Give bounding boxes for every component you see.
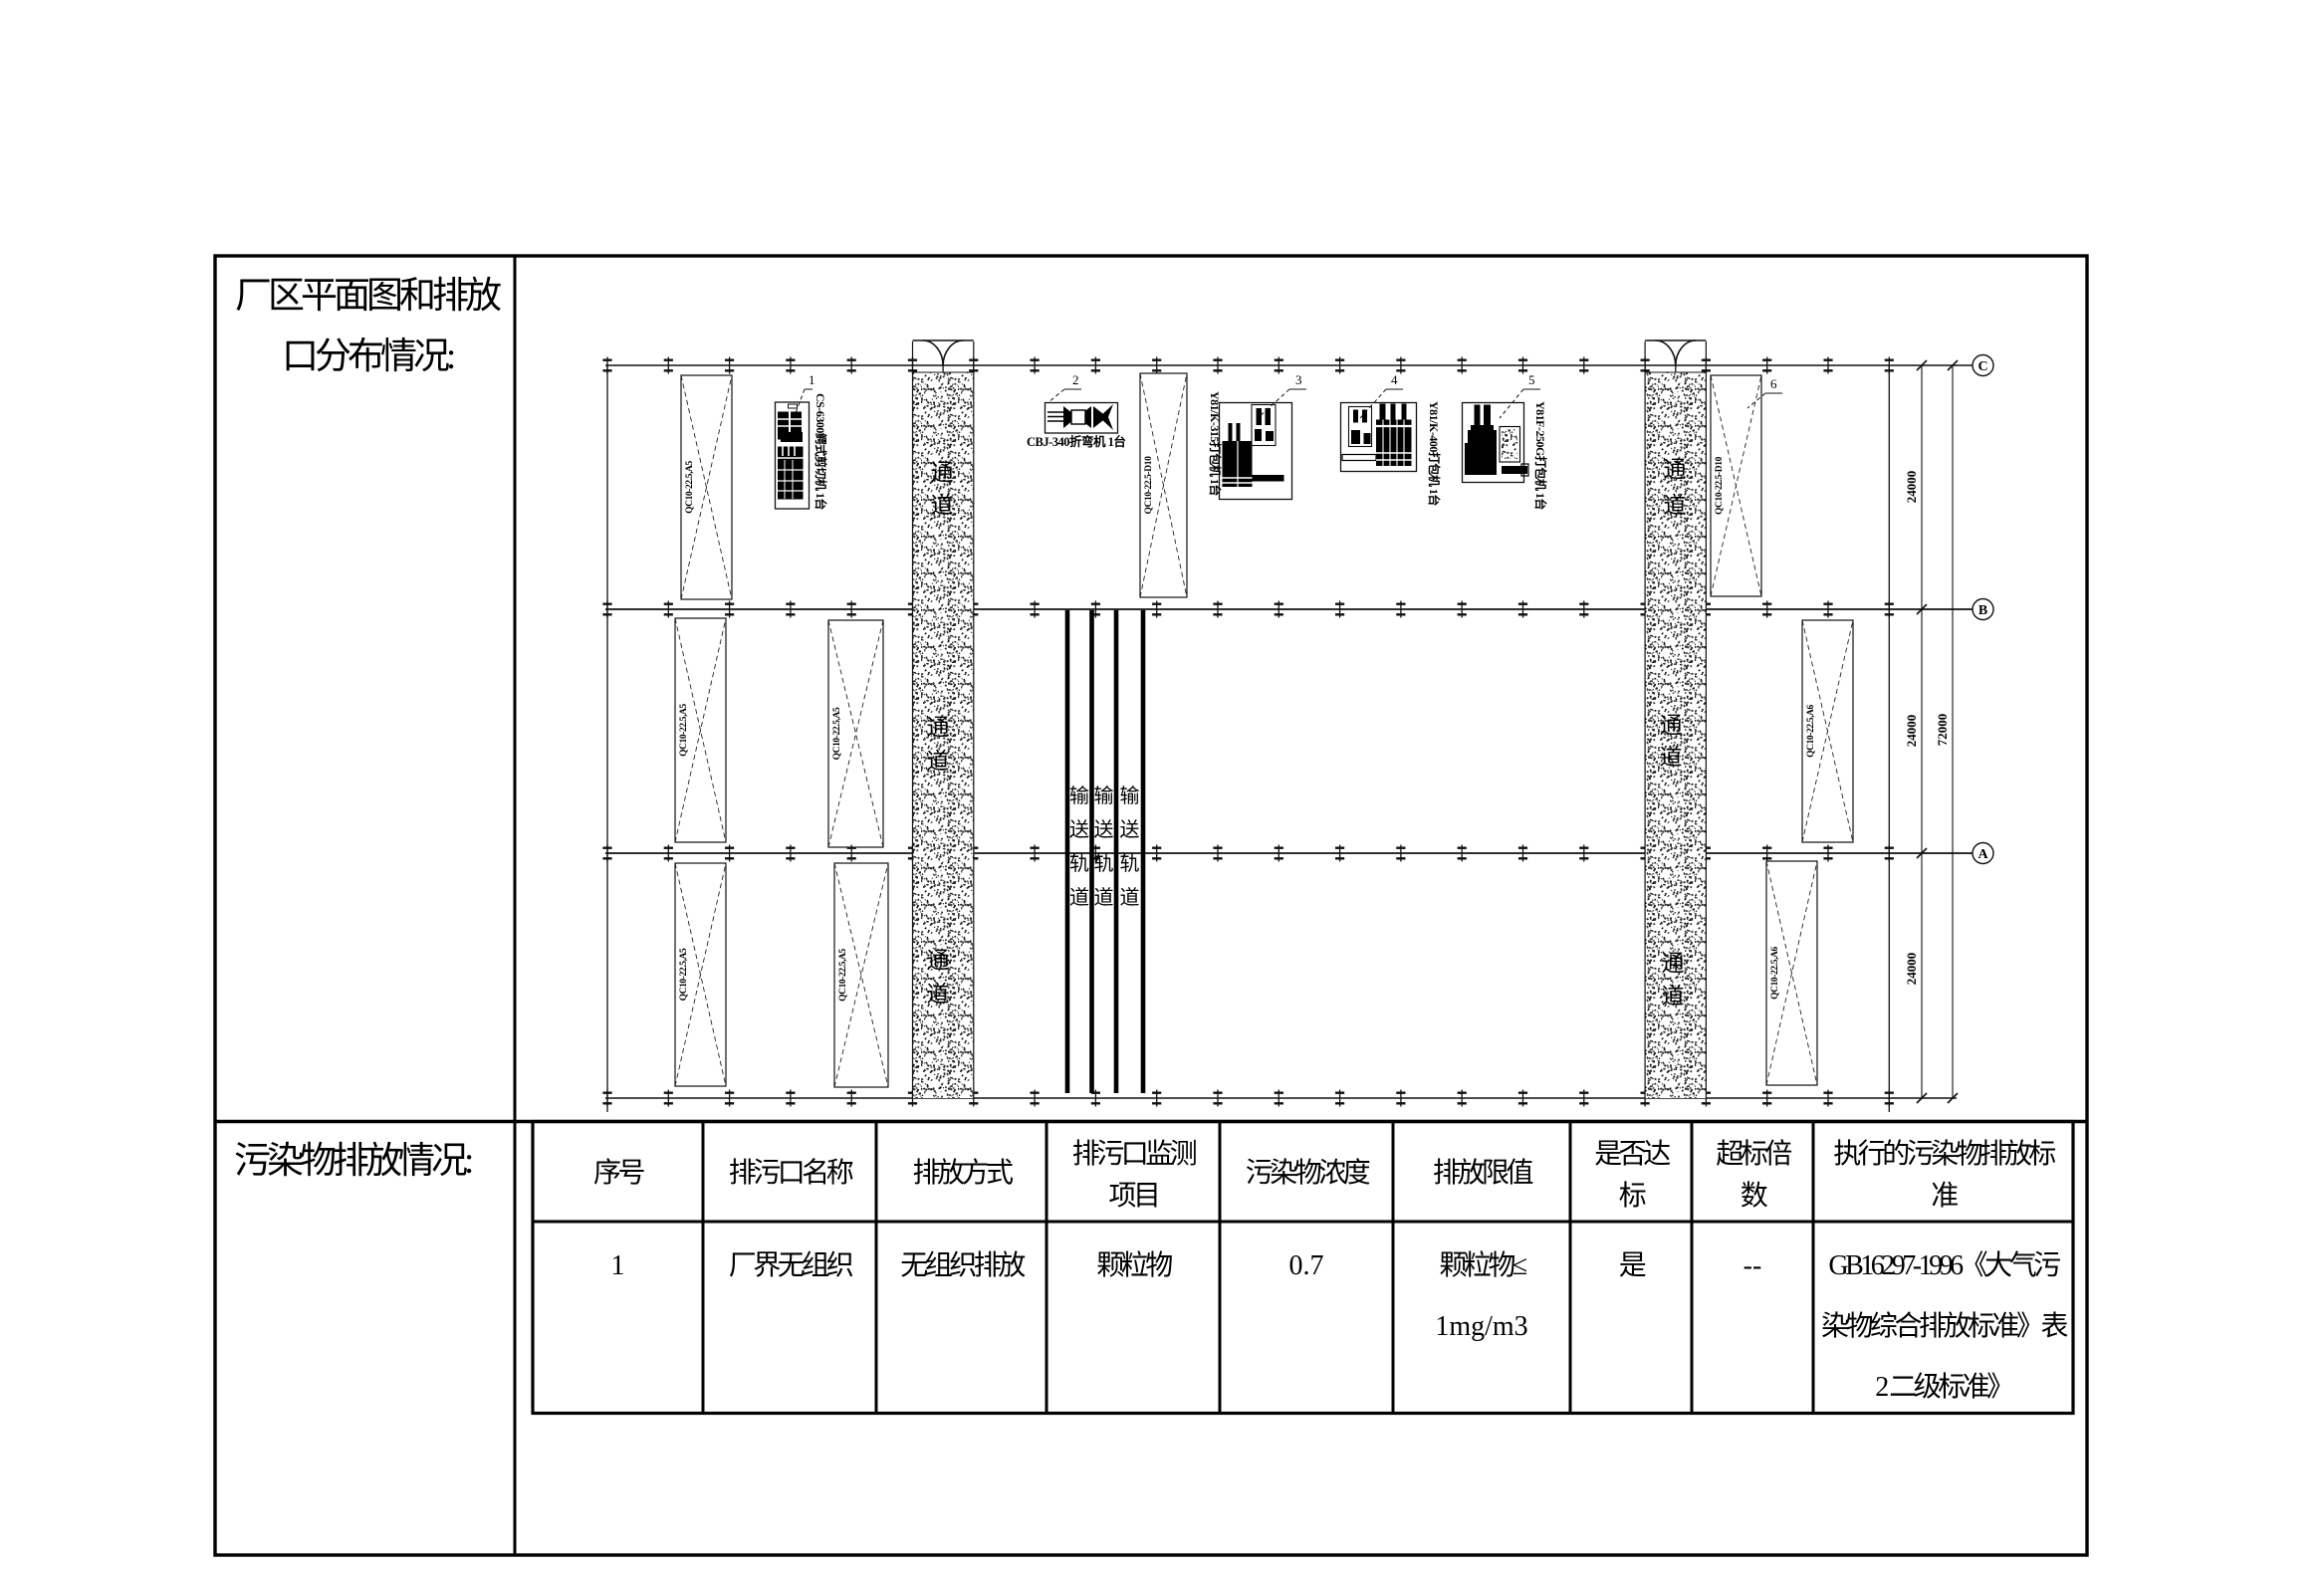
svg-text:是: 是	[1619, 1250, 1646, 1281]
svg-text:颗粒物: 颗粒物	[1096, 1249, 1172, 1281]
svg-text:道: 道	[1660, 745, 1683, 770]
svg-text:送: 送	[1094, 818, 1114, 841]
svg-text:QC10-22.5,A5: QC10-22.5,A5	[838, 948, 848, 1001]
svg-text:--: --	[1743, 1250, 1762, 1281]
svg-text:口分布情况:: 口分布情况:	[282, 336, 454, 377]
svg-text:厂界无组织: 厂界无组织	[729, 1249, 853, 1281]
svg-text:2: 2	[1072, 372, 1079, 387]
svg-text:轨: 轨	[1069, 852, 1089, 875]
svg-text:排污口监测: 排污口监测	[1072, 1138, 1196, 1170]
svg-text:6: 6	[1770, 376, 1777, 391]
svg-text:送: 送	[1120, 818, 1140, 841]
svg-text:CS-6300鳄式剪切机 1台: CS-6300鳄式剪切机 1台	[813, 393, 828, 510]
svg-text:排放方式: 排放方式	[912, 1157, 1014, 1189]
svg-text:道: 道	[1664, 493, 1687, 518]
svg-text:QC10-22.5,A5: QC10-22.5,A5	[832, 707, 842, 760]
svg-text:送: 送	[1069, 818, 1089, 841]
svg-text:污染物浓度: 污染物浓度	[1246, 1157, 1370, 1189]
svg-text:轨: 轨	[1094, 852, 1114, 875]
svg-text:24000: 24000	[1904, 471, 1919, 504]
svg-text:排放限值: 排放限值	[1433, 1157, 1533, 1189]
svg-text:通: 通	[1662, 951, 1685, 976]
svg-text:GB16297-1996《大气污: GB16297-1996《大气污	[1828, 1249, 2060, 1281]
svg-text:2 二级标准》: 2 二级标准》	[1875, 1371, 2011, 1403]
svg-text:C: C	[1977, 359, 1987, 374]
svg-text:道: 道	[1069, 886, 1089, 909]
svg-text:准: 准	[1931, 1180, 1958, 1212]
svg-text:输: 输	[1120, 785, 1140, 807]
svg-text:染物综合排放标准》表: 染物综合排放标准》表	[1821, 1310, 2069, 1342]
svg-text:颗粒物≤: 颗粒物≤	[1439, 1249, 1527, 1281]
svg-text:QC10-22.5,A5: QC10-22.5,A5	[679, 948, 689, 1001]
svg-text:Y81/K-315打包机 1台: Y81/K-315打包机 1台	[1208, 391, 1223, 496]
svg-text:道: 道	[1120, 886, 1140, 909]
svg-text:QC10-22.5,A5: QC10-22.5,A5	[679, 703, 689, 756]
svg-text:无组织排放: 无组织排放	[900, 1249, 1026, 1281]
svg-text:执行的污染物排放标: 执行的污染物排放标	[1833, 1138, 2055, 1170]
svg-text:1: 1	[611, 1250, 625, 1281]
svg-text:道: 道	[927, 749, 950, 774]
svg-text:QC10-22.5,A6: QC10-22.5,A6	[1806, 704, 1816, 757]
svg-text:QC10-22.5,A6: QC10-22.5,A6	[1770, 946, 1780, 999]
svg-text:通: 通	[927, 715, 950, 740]
svg-text:标: 标	[1619, 1180, 1646, 1212]
svg-text:5: 5	[1528, 372, 1535, 387]
svg-text:Y81F-250G打包机 1台: Y81F-250G打包机 1台	[1533, 401, 1548, 510]
svg-text:Y81/K-400打包机 1台: Y81/K-400打包机 1台	[1427, 401, 1442, 506]
svg-text:QC10-22.5-D10: QC10-22.5-D10	[1144, 456, 1154, 515]
svg-text:CBJ-340折弯机 1台: CBJ-340折弯机 1台	[1027, 434, 1125, 449]
svg-text:A: A	[1977, 847, 1988, 862]
svg-text:72000: 72000	[1935, 714, 1950, 747]
svg-text:4: 4	[1391, 372, 1398, 387]
svg-text:项目: 项目	[1108, 1181, 1157, 1212]
svg-text:厂区平面图和排放: 厂区平面图和排放	[235, 275, 501, 317]
svg-text:1mg/m3: 1mg/m3	[1435, 1311, 1527, 1342]
svg-text:通: 通	[931, 460, 954, 485]
svg-text:通: 通	[1660, 713, 1683, 738]
svg-text:道: 道	[927, 982, 950, 1007]
svg-text:道: 道	[1662, 984, 1685, 1009]
svg-text:序号: 序号	[593, 1157, 645, 1189]
svg-text:B: B	[1978, 603, 1987, 618]
svg-text:输: 输	[1094, 785, 1114, 807]
svg-text:是否达: 是否达	[1594, 1138, 1670, 1170]
svg-text:QC10-22.5,A5: QC10-22.5,A5	[685, 460, 695, 513]
svg-text:输: 输	[1069, 785, 1089, 807]
svg-text:QC10-22.5-D10: QC10-22.5-D10	[1715, 456, 1725, 515]
svg-text:24000: 24000	[1904, 953, 1919, 986]
svg-text:道: 道	[931, 493, 954, 518]
svg-text:超标倍: 超标倍	[1716, 1138, 1791, 1170]
svg-text:3: 3	[1295, 372, 1302, 387]
svg-text:1: 1	[809, 372, 815, 387]
svg-text:污染物排放情况:: 污染物排放情况:	[234, 1140, 472, 1182]
svg-text:道: 道	[1094, 886, 1114, 909]
svg-text:24000: 24000	[1904, 715, 1919, 748]
svg-text:通: 通	[927, 948, 950, 973]
svg-text:0.7: 0.7	[1289, 1250, 1324, 1281]
svg-text:通: 通	[1664, 457, 1687, 482]
svg-text:轨: 轨	[1120, 852, 1140, 875]
svg-text:排污口名称: 排污口名称	[729, 1157, 853, 1189]
svg-text:数: 数	[1741, 1180, 1768, 1212]
